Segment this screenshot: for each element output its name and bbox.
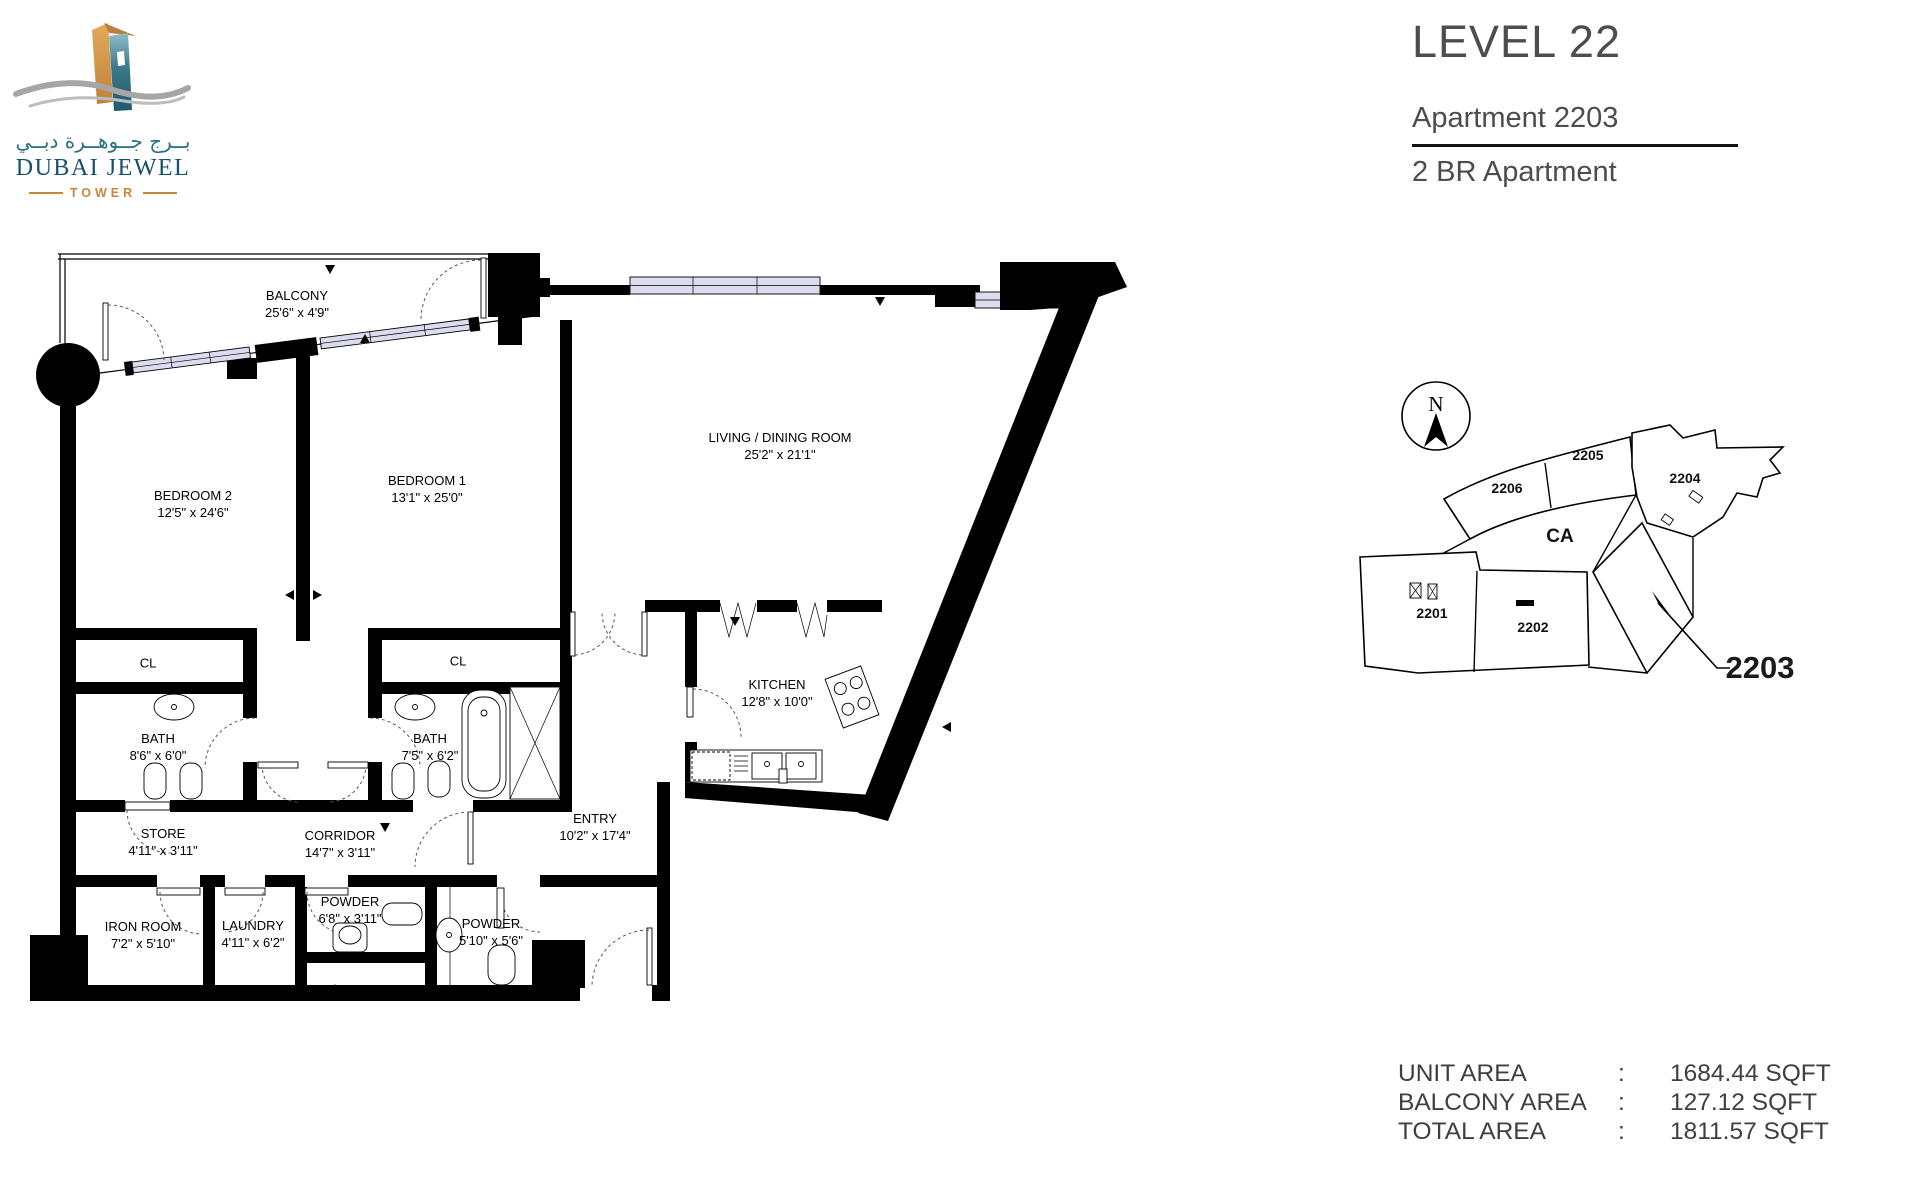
keyplan-label-2202: 2202	[1517, 619, 1548, 635]
room-label-laundry: LAUNDRY4'11" x 6'2"	[221, 918, 284, 952]
bath1-sink-drain	[413, 705, 418, 710]
logo: بــرج جــوهــرة دبــي DUBAI JEWEL TOWER	[8, 18, 198, 200]
logo-subtitle: TOWER	[70, 186, 136, 200]
keyplan-label-2205: 2205	[1572, 447, 1603, 463]
area-row-sep: :	[1618, 1118, 1670, 1146]
room-label-bedroom1: BEDROOM 113'1" x 25'0"	[388, 473, 466, 507]
area-row-sep: :	[1618, 1089, 1670, 1117]
rail-block	[227, 358, 257, 379]
marker-icon	[380, 823, 390, 832]
balcony-door-arc-right	[421, 260, 481, 320]
tower-roof	[104, 23, 136, 36]
bath2-sink-drain	[172, 705, 177, 710]
logo-arabic-text: بــرج جــوهــرة دبــي	[8, 129, 198, 153]
living-double-door-arcs	[575, 612, 642, 655]
powder-divider-wall	[425, 875, 437, 1001]
living-double-door-leaf-2	[642, 612, 647, 656]
bedroom-divider-wall	[296, 345, 310, 641]
corridor-top-wall-1	[60, 800, 125, 812]
entry-right-wall	[657, 782, 670, 985]
living-window-1	[630, 277, 820, 294]
marker-icon	[313, 590, 322, 600]
bathtub-drain	[481, 710, 487, 716]
balcony-corner-block-2	[498, 317, 522, 345]
bath2-door-arc	[205, 718, 255, 768]
tower-icon	[8, 18, 198, 122]
lower-wall-2	[200, 875, 225, 887]
balcony-door-arc-left	[108, 305, 164, 361]
room-label-powder1: POWDER6'8" x 3'11"	[318, 894, 381, 928]
room-label-cl1: CL	[450, 654, 467, 671]
bath1-toilet-1	[392, 763, 414, 799]
room-label-store: STORE4'11" x 3'11"	[128, 826, 197, 860]
lower-wall-5	[540, 875, 667, 887]
powder2-sink-drain	[447, 933, 452, 938]
keyplan-unit-2204	[1632, 425, 1783, 537]
wall-jog	[935, 285, 980, 307]
marker-icon	[325, 265, 335, 274]
keyplan-label-ca: CA	[1546, 526, 1574, 547]
area-row-value: 127.12 SQFT	[1670, 1089, 1831, 1117]
bottom-wall-2	[652, 985, 670, 1001]
bath1-left-wall-a	[368, 628, 382, 718]
bedroom1-living-wall	[560, 320, 572, 812]
passage-door-leaf-1	[258, 762, 298, 768]
corridor-door-arc	[415, 812, 470, 867]
corridor-top-wall-3	[473, 800, 560, 812]
room-label-cl2: CL	[140, 656, 157, 673]
kitchen-bottom-wall	[685, 782, 872, 813]
powder1-toilet	[382, 903, 422, 925]
area-table: UNIT AREA : 1684.44 SQFT BALCONY AREA : …	[1398, 1060, 1831, 1146]
bottom-wall-1	[30, 985, 580, 1001]
area-row-label: BALCONY AREA	[1398, 1089, 1618, 1117]
logo-rule-left	[29, 192, 63, 194]
corridor-top-wall-2	[170, 800, 413, 812]
iron-laundry-divider	[203, 887, 215, 987]
area-row-value: 1811.57 SQFT	[1670, 1118, 1831, 1146]
balcony-door-leaf-left	[103, 303, 108, 360]
living-top-wall-1	[530, 285, 630, 295]
marker-icon	[875, 297, 885, 306]
svg-text:N: N	[1428, 392, 1443, 416]
room-label-bath1: BATH7'5" x 6'2"	[402, 731, 459, 765]
bath2-toilet-1	[144, 763, 166, 799]
living-bottom-wall-3	[827, 600, 882, 612]
logo-rule-right	[143, 192, 177, 194]
header-underline	[1412, 144, 1738, 147]
living-double-door-leaf-1	[570, 612, 575, 656]
accordion-door-2	[797, 603, 827, 637]
room-label-kitchen: KITCHEN12'8" x 10'0"	[741, 677, 812, 711]
sliding-door-panel-2	[320, 317, 480, 351]
room-label-corridor: CORRIDOR14'7" x 3'11"	[305, 828, 376, 862]
cl2-mid-wall	[60, 682, 255, 694]
living-bottom-wall-2	[757, 600, 797, 612]
logo-title: DUBAI JEWEL	[8, 155, 198, 182]
room-label-balcony: BALCONY25'6" x 4'9"	[265, 288, 329, 322]
area-row-sep: :	[1618, 1060, 1670, 1088]
cl2-top-wall	[60, 628, 255, 640]
logo-subtitle-row: TOWER	[8, 186, 198, 200]
lower-wall-1	[60, 875, 157, 887]
iron-door-leaf	[157, 888, 200, 895]
kitchen-door-leaf	[687, 687, 693, 717]
diagonal-wall	[858, 280, 1102, 821]
bath1-toilet-2	[428, 761, 450, 797]
bath2-right-wall-a	[243, 628, 257, 718]
powder2-toilet	[488, 945, 515, 985]
room-label-powder2: POWDER5'10" x 5'6"	[459, 916, 523, 950]
apartment-number: Apartment 2203	[1412, 102, 1832, 135]
cl1-top-wall	[368, 628, 560, 640]
lower-wall-4	[348, 875, 497, 887]
room-label-ironroom: IRON ROOM7'2" x 5'10"	[105, 919, 182, 953]
left-wall	[60, 375, 76, 935]
entry-block	[532, 940, 585, 988]
kitchen-left-wall-a	[685, 612, 697, 687]
bedroom-passage-door-arcs	[262, 764, 366, 802]
room-label-living: LIVING / DINING ROOM25'2" x 21'1"	[708, 430, 851, 464]
kitchen-door-arc	[693, 689, 741, 737]
area-row-label: TOTAL AREA	[1398, 1118, 1618, 1146]
laundry-door-leaf	[225, 888, 265, 895]
passage-door-leaf-2	[328, 762, 368, 768]
balcony-door-leaf-right	[481, 258, 486, 318]
room-label-bedroom2: BEDROOM 212'5" x 24'6"	[154, 488, 232, 522]
lower-wall-3	[265, 875, 305, 887]
key-plan: N 2206 220	[1340, 375, 1920, 695]
living-top-wall-2	[820, 285, 940, 295]
keyplan-label-2206: 2206	[1491, 480, 1522, 496]
room-label-bath2: BATH8'6" x 6'0"	[130, 731, 187, 765]
room-label-entry: ENTRY10'2" x 17'4"	[559, 811, 630, 845]
bath2-toilet-2	[180, 763, 202, 799]
apartment-type: 2 BR Apartment	[1412, 156, 1832, 189]
living-bottom-wall-1	[645, 600, 720, 612]
header: LEVEL 22 Apartment 2203 2 BR Apartment	[1412, 16, 1832, 189]
corridor-door-leaf	[468, 812, 473, 864]
page-title-level: LEVEL 22	[1412, 16, 1832, 68]
area-row-value: 1684.44 SQFT	[1670, 1060, 1831, 1088]
keyplan-label-2201: 2201	[1416, 605, 1447, 621]
laundry-powder-divider	[295, 887, 307, 987]
powder1-bottom-wall	[295, 952, 437, 963]
stove-icon	[825, 666, 879, 728]
floor-plan-drawing	[30, 245, 1130, 1035]
entry-door-arc	[592, 930, 649, 987]
area-row-label: UNIT AREA	[1398, 1060, 1618, 1088]
marker-icon	[730, 617, 740, 626]
keyplan-label-2203: 2203	[1726, 650, 1795, 685]
north-arrow-icon: N	[1402, 382, 1470, 450]
kitchen-counter	[690, 750, 822, 783]
store-door-leaf	[125, 802, 170, 810]
keyplan-label-2204: 2204	[1669, 470, 1700, 486]
marker-icon	[942, 722, 951, 732]
powder1-basin	[339, 926, 361, 944]
marker-icon	[285, 590, 294, 600]
tower-window	[117, 51, 125, 66]
entry-door-leaf	[647, 928, 652, 985]
keyplan-band	[1444, 437, 1636, 539]
page: بــرج جــوهــرة دبــي DUBAI JEWEL TOWER …	[0, 0, 1920, 1184]
